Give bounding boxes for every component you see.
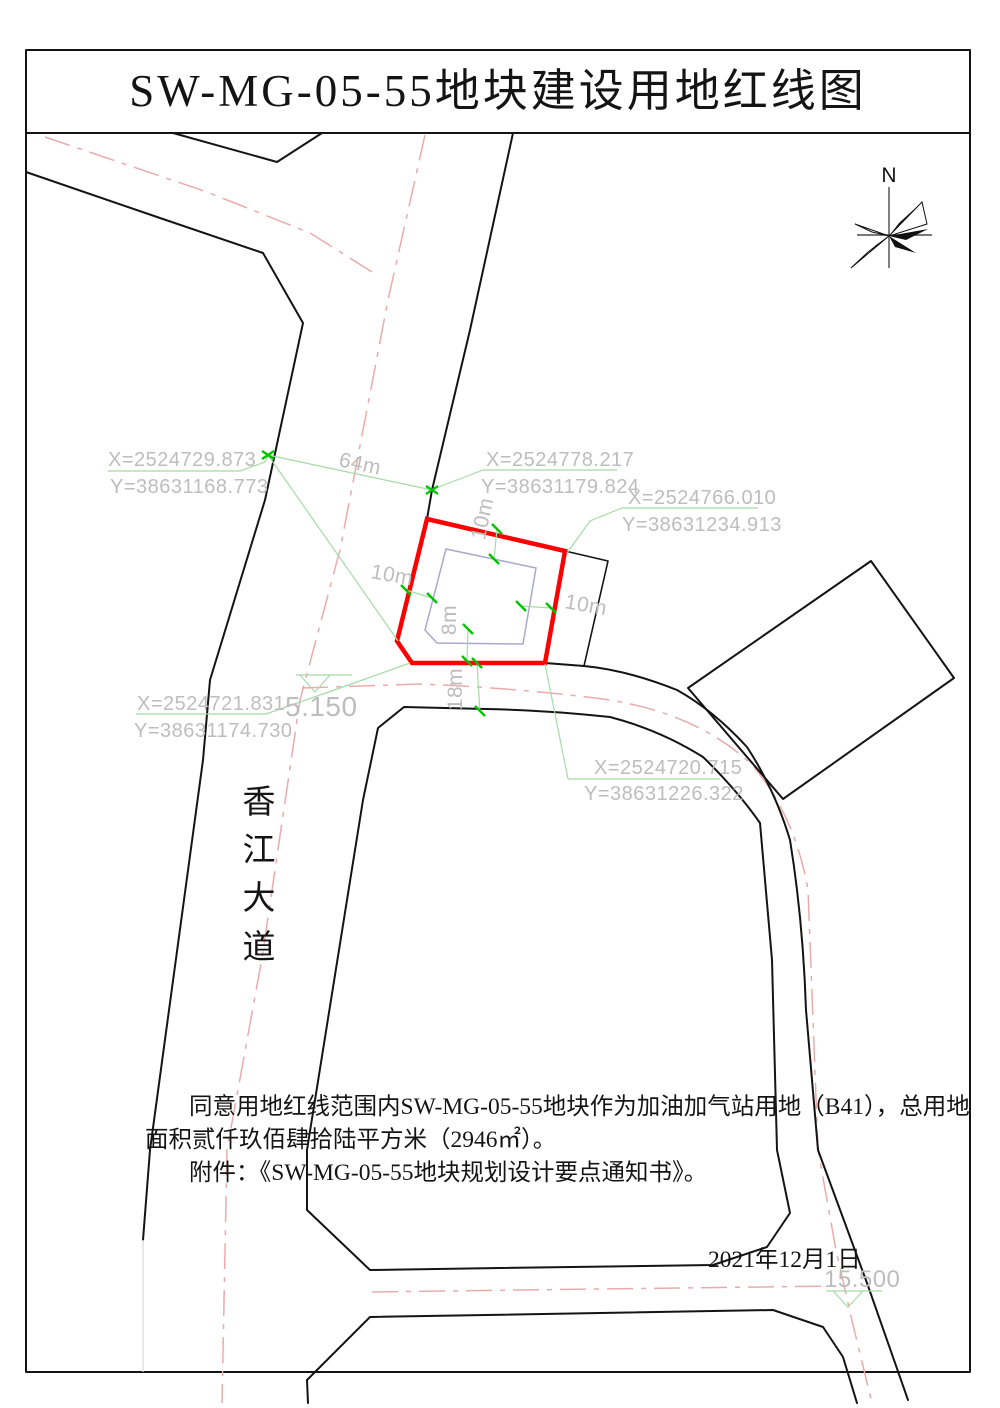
coord-label-5-x: X=2524720.715 [594,757,742,779]
note-line-2: 面积贰仟玖佰肆拾陆平方米（2946㎡）。 [145,1126,556,1153]
coord-label-5-y: Y=38631226.322 [584,783,744,805]
map-frame-border [26,133,970,1372]
north-arrow: N [851,164,932,268]
road-name-vertical: 香 江 大 道 [243,785,276,966]
drawing-canvas: SW-MG-05-55地块建设用地红线图 X=2524729.873 Y=386… [0,0,1000,1408]
dim-line-right-10m [521,606,551,608]
road-name-char-1: 香 [243,785,276,821]
approval-note: 同意用地红线范围内SW-MG-05-55地块作为加油加气站用地（B41），总用地… [145,1093,970,1186]
coord-label-2-y: Y=38631179.824 [481,476,639,498]
dim-line-8m [467,629,468,661]
road-name-char-2: 江 [243,833,276,869]
centerline-upper-road [45,137,372,272]
centerline-avenue [222,135,425,1403]
dim-label-8m: 8m [438,605,461,635]
dim-label-18m: 18m [444,668,467,710]
block-corner-north [173,133,322,162]
coord-label-3-x: X=2524766.010 [628,487,776,509]
note-line-1: 同意用地红线范围内SW-MG-05-55地块作为加油加气站用地（B41），总用地 [189,1093,970,1120]
dim-label-64m: 64m [337,448,383,479]
page-title: SW-MG-05-55地块建设用地红线图 [129,66,866,116]
centerline-bottom-road [372,1286,838,1292]
coord-label-4-y: Y=38631174.730 [134,720,292,742]
leader-long-diagonal [268,455,398,641]
red-line-map-sheet: SW-MG-05-55地块建设用地红线图 X=2524729.873 Y=386… [0,0,1000,1408]
spot-elevation-symbol-south [296,675,352,692]
road-edge-bottom-south [307,1310,857,1403]
dim-label-right-10m: 10m [563,590,609,620]
coord-label-2-x: X=2524778.217 [486,449,634,471]
road-name-char-4: 道 [243,929,276,966]
coord-label-1-x: X=2524729.873 [108,449,256,471]
date-label: 2021年12月1日 [708,1246,861,1273]
compass-blade-w-white [855,224,889,236]
compass-blade-sw-white [851,236,889,268]
coord-label-4-x: X=2524721.831 [137,693,285,715]
note-line-3: 附件：《SW-MG-05-55地块规划设计要点通知书》。 [189,1159,707,1186]
coord-label-3-y: Y=38631234.913 [622,514,782,536]
elevation-label-south: 5.150 [285,691,358,722]
coord-label-1-y: Y=38631168.773 [110,476,268,498]
dim-label-left-10m: 10m [369,560,415,590]
north-label: N [881,164,896,187]
road-name-char-3: 大 [243,880,276,917]
compass-cross [857,187,932,268]
survey-x-mark-west [262,451,274,459]
